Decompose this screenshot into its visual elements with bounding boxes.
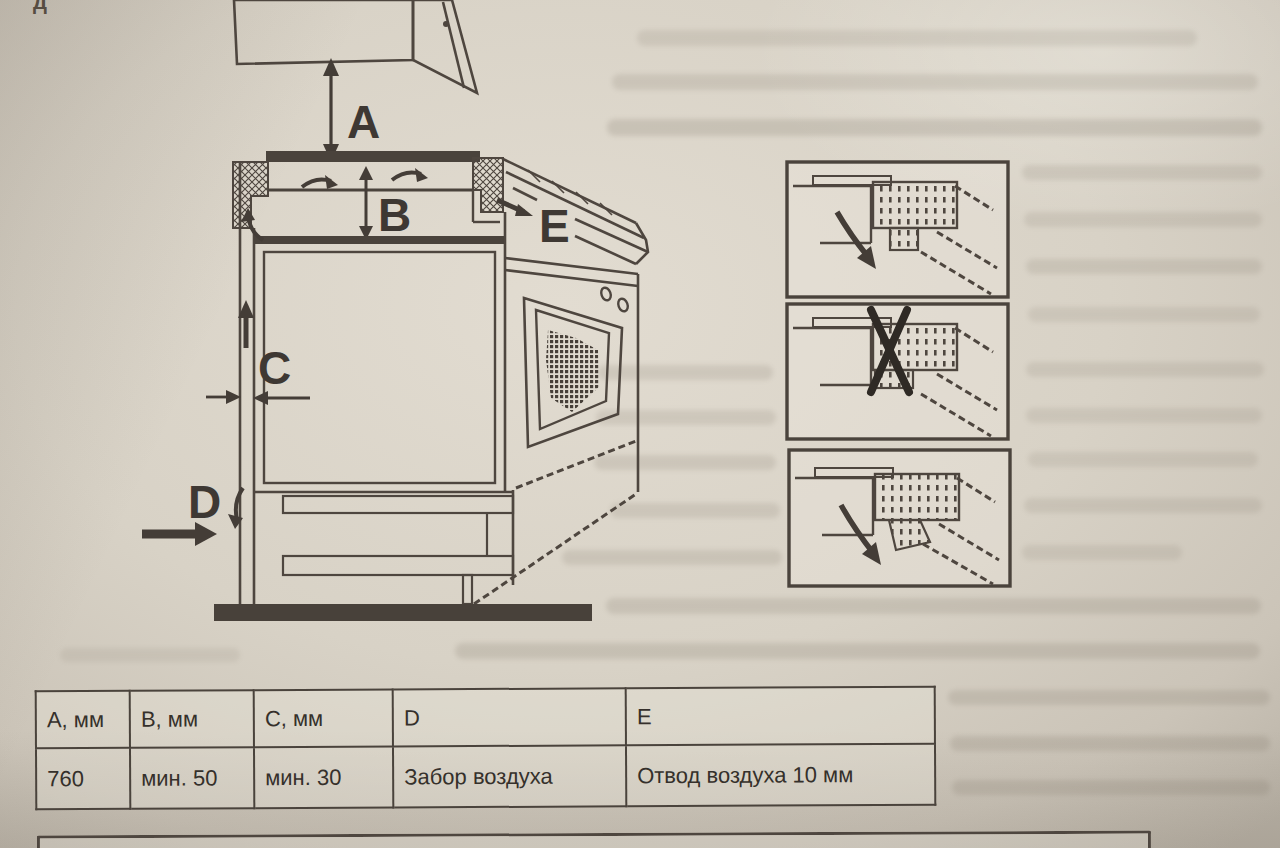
oven-knob-icon [617, 297, 630, 312]
vent-grille [875, 474, 959, 520]
oven-front-perspective [503, 159, 648, 492]
airflow-arrow-icon [515, 204, 533, 216]
diagram-label-e: E [539, 200, 570, 252]
air-exhaust-e: E [497, 200, 570, 252]
diagram-label-d: D [188, 476, 221, 528]
table-header-cell: E [626, 687, 935, 746]
plinth-band [283, 556, 513, 575]
diagram-label-a: A [347, 96, 380, 148]
cabinet-knob-icon [443, 21, 449, 27]
vent-panel-incorrect [787, 304, 1008, 439]
dimension-arrow-a: A [323, 58, 380, 162]
table-header-cell: D [393, 688, 626, 746]
table-value-cell: 760 [36, 748, 130, 809]
table-header-cell: A, мм [36, 691, 130, 748]
countertop-section [233, 151, 503, 228]
air-intake-d: D [142, 476, 243, 546]
oven-knob-icon [600, 286, 613, 301]
plinth-band [283, 496, 513, 513]
vent-damper [890, 228, 918, 250]
dimension-arrow-c: C [206, 342, 310, 405]
table-value-cell: Забор воздуха [393, 745, 626, 807]
vent-panel-correct-top [787, 162, 1008, 297]
table-value-row: 760 мин. 50 мин. 30 Забор воздуха Отвод … [36, 744, 935, 810]
diagram-label-c: C [258, 342, 291, 394]
manual-page-photo: д [0, 0, 1280, 848]
diagram-label-b: B [378, 189, 411, 241]
table-header-cell: C, мм [254, 689, 393, 747]
table-header-cell: B, мм [130, 690, 254, 748]
arrow-up-icon [359, 166, 373, 180]
dimension-arrow-b: B [359, 166, 411, 241]
table-value-cell: мин. 50 [130, 747, 254, 809]
vent-grille [873, 182, 957, 228]
wall-cabinet [234, 0, 477, 93]
vent-panel-correct-bottom [789, 450, 1010, 586]
oven-foot [463, 575, 472, 604]
table-value-cell: Отвод воздуха 10 мм [626, 744, 935, 807]
table-value-cell: мин. 30 [254, 746, 393, 808]
door-glass-reflection [546, 330, 600, 412]
floor-line [214, 604, 592, 621]
table-header-row: A, мм B, мм C, мм D E [36, 687, 935, 749]
clearance-table: A, мм B, мм C, мм D E 760 мин. 50 мин. 3… [35, 686, 937, 811]
